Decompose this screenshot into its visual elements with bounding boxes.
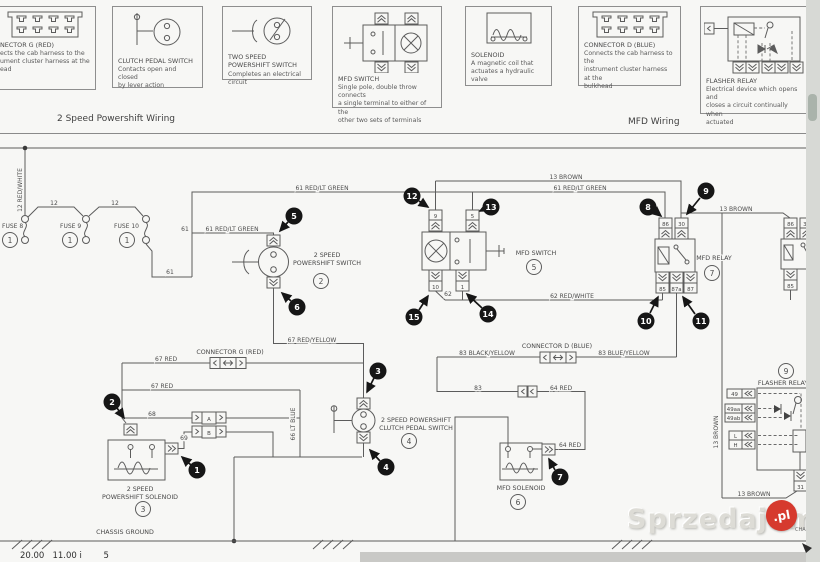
wire-label: 13 BROWN <box>550 174 583 181</box>
flasher-relay: 9 FLASHER RELAY 49 49aa 49ab L H 31 <box>725 364 808 492</box>
right-scrollbar-thumb[interactable] <box>808 94 817 121</box>
wire-label: 12 <box>50 200 58 207</box>
two-speed-powershift-switch: 2 SPEED POWERSHIFT SWITCH 2 <box>232 235 361 289</box>
callout-number: 13 <box>485 203 496 212</box>
terminal: L <box>734 434 737 440</box>
terminal: 86 <box>662 222 669 228</box>
terminal: H <box>733 443 737 449</box>
wire-label: 62 <box>444 291 452 298</box>
callout-number: 4 <box>383 463 389 472</box>
fuse-label: FUSE 9 <box>60 223 81 230</box>
ref-number: 1 <box>125 236 130 245</box>
component-label: 2 SPEED <box>127 486 154 493</box>
callout-number: 7 <box>557 473 563 482</box>
terminal: 87 <box>687 287 694 293</box>
right-scrollbar-track[interactable] <box>806 0 820 562</box>
ref-number: 6 <box>516 498 521 507</box>
connector-label: CONNECTOR D (BLUE) <box>522 343 592 350</box>
component-label: POWERSHIFT SWITCH <box>293 260 361 267</box>
mfd-relay: 86 30 85 87a 87 MFD RELAY 7 <box>655 218 732 293</box>
wire-label: 13 BROWN <box>738 491 771 498</box>
fuse-label: FUSE 10 <box>114 223 139 230</box>
callout-number: 9 <box>703 187 709 196</box>
terminal: 49 <box>731 392 738 398</box>
wire-label: 68 <box>148 411 156 418</box>
component-label: POWERSHIFT SOLENOID <box>102 494 178 501</box>
wire-label: 69 <box>180 435 188 442</box>
terminal: 9 <box>434 214 438 220</box>
wire-label: 64 RED <box>559 442 582 449</box>
wire-label: 12 <box>111 200 119 207</box>
ref-number: 5 <box>532 263 537 272</box>
callout-number: 15 <box>408 313 420 322</box>
wiring-diagram: CHASSIS GROUND FUSE 8 FUSE 9 FUSE 10 2 S… <box>0 0 820 562</box>
callout-number: 10 <box>640 317 652 326</box>
edge-clipped-text: CHA <box>795 527 806 533</box>
wire-label: 67 RED <box>151 383 174 390</box>
wire-label: 66 LT BLUE <box>290 407 297 440</box>
wire-label: 83 <box>474 385 482 392</box>
mfd-switch: 9 5 10 1 MFD SWITCH 5 <box>422 210 557 291</box>
ref-number: 1 <box>8 236 13 245</box>
terminal: 49ab <box>727 416 741 422</box>
terminal: 85 <box>659 287 666 293</box>
fuse-refs: 1 1 1 <box>3 233 135 248</box>
ref-number: 4 <box>407 437 412 446</box>
wire-label: 12 RED/WHITE <box>17 168 24 212</box>
callout-number: 11 <box>695 317 707 326</box>
callout-number: 2 <box>109 398 115 407</box>
wire-label: 61 RED/LT GREEN <box>553 185 606 192</box>
ref-number: 7 <box>710 269 715 278</box>
callout-number: 12 <box>406 192 417 201</box>
ref-number: 2 <box>319 277 324 286</box>
ref-number: 1 <box>68 236 73 245</box>
bottom-clipped-text: 20.00 11.00 i 5 <box>20 551 350 562</box>
wire-label: 83 BLUE/YELLOW <box>598 350 650 357</box>
component-label: MFD SOLENOID <box>497 485 546 492</box>
terminal: 5 <box>471 214 474 220</box>
terminal: 31 <box>797 485 804 491</box>
terminal: 85 <box>787 284 794 290</box>
component-label: 2 SPEED POWERSHIFT <box>381 417 451 424</box>
callout-number: 14 <box>482 310 494 319</box>
mouse-cursor-icon <box>801 540 814 559</box>
callout-number: 3 <box>375 367 381 376</box>
terminal: 49aa <box>727 407 740 413</box>
wire-label: 62 RED/WHITE <box>550 293 594 300</box>
wire-label: 61 RED/LT GREEN <box>295 185 348 192</box>
callout-number: 5 <box>291 212 297 221</box>
component-label: MFD RELAY <box>696 255 732 262</box>
mfd-solenoid: MFD SOLENOID 6 <box>497 443 555 510</box>
connector-label: CONNECTOR G (RED) <box>196 349 263 356</box>
callout-number: 8 <box>645 203 651 212</box>
component-label: CLUTCH PEDAL SWITCH <box>379 425 453 432</box>
fuse-label: FUSE 8 <box>2 223 23 230</box>
wire-label: 61 <box>181 226 189 233</box>
callout-number: 1 <box>194 466 200 475</box>
wire-label: 61 RED/LT GREEN <box>205 226 258 233</box>
wire-label: 67 RED <box>155 356 178 363</box>
terminal: 86 <box>787 222 794 228</box>
chassis-ground-label: CHASSIS GROUND <box>96 529 154 536</box>
clutch-pedal-switch: 2 SPEED POWERSHIFT CLUTCH PEDAL SWITCH 4 <box>331 398 453 449</box>
connector-83-64 <box>518 386 537 397</box>
connector-d: CONNECTOR D (BLUE) <box>522 343 592 363</box>
component-label: MFD SWITCH <box>516 250 557 257</box>
terminal: 1 <box>461 285 464 291</box>
wire-label: 67 RED/YELLOW <box>288 337 337 344</box>
wire-label: 64 RED <box>550 385 573 392</box>
watermark-tld: .pl <box>772 507 791 524</box>
callout-number: 6 <box>294 303 300 312</box>
ref-number: 9 <box>784 367 789 376</box>
wire-label: 61 <box>166 269 174 276</box>
terminal: 87a <box>671 287 681 293</box>
terminal: 10 <box>432 285 439 291</box>
connector-a: A <box>192 412 226 424</box>
connector-b: B <box>192 426 226 438</box>
wire-label: 13 BROWN <box>720 206 753 213</box>
ref-number: 3 <box>141 505 146 514</box>
bottom-gray-bar <box>360 552 806 562</box>
manual-page: NECTOR G (RED) ects the cab harness to t… <box>0 0 820 562</box>
wire-label: 13 BROWN <box>713 416 720 449</box>
wire-label: 83 BLACK/YELLOW <box>459 350 515 357</box>
connector-g: CONNECTOR G (RED) <box>196 349 263 369</box>
wire-runs <box>0 146 810 544</box>
terminal: B <box>207 431 211 437</box>
terminal: A <box>207 417 211 423</box>
two-speed-powershift-solenoid: 2 SPEED POWERSHIFT SOLENOID 3 <box>102 424 178 517</box>
component-label: 2 SPEED <box>314 252 341 259</box>
wire-labels: 12 RED/WHITE 12 12 61 61 61 RED/LT GREEN… <box>17 168 770 498</box>
terminal: 30 <box>678 222 685 228</box>
component-label: FLASHER RELAY <box>758 380 808 387</box>
